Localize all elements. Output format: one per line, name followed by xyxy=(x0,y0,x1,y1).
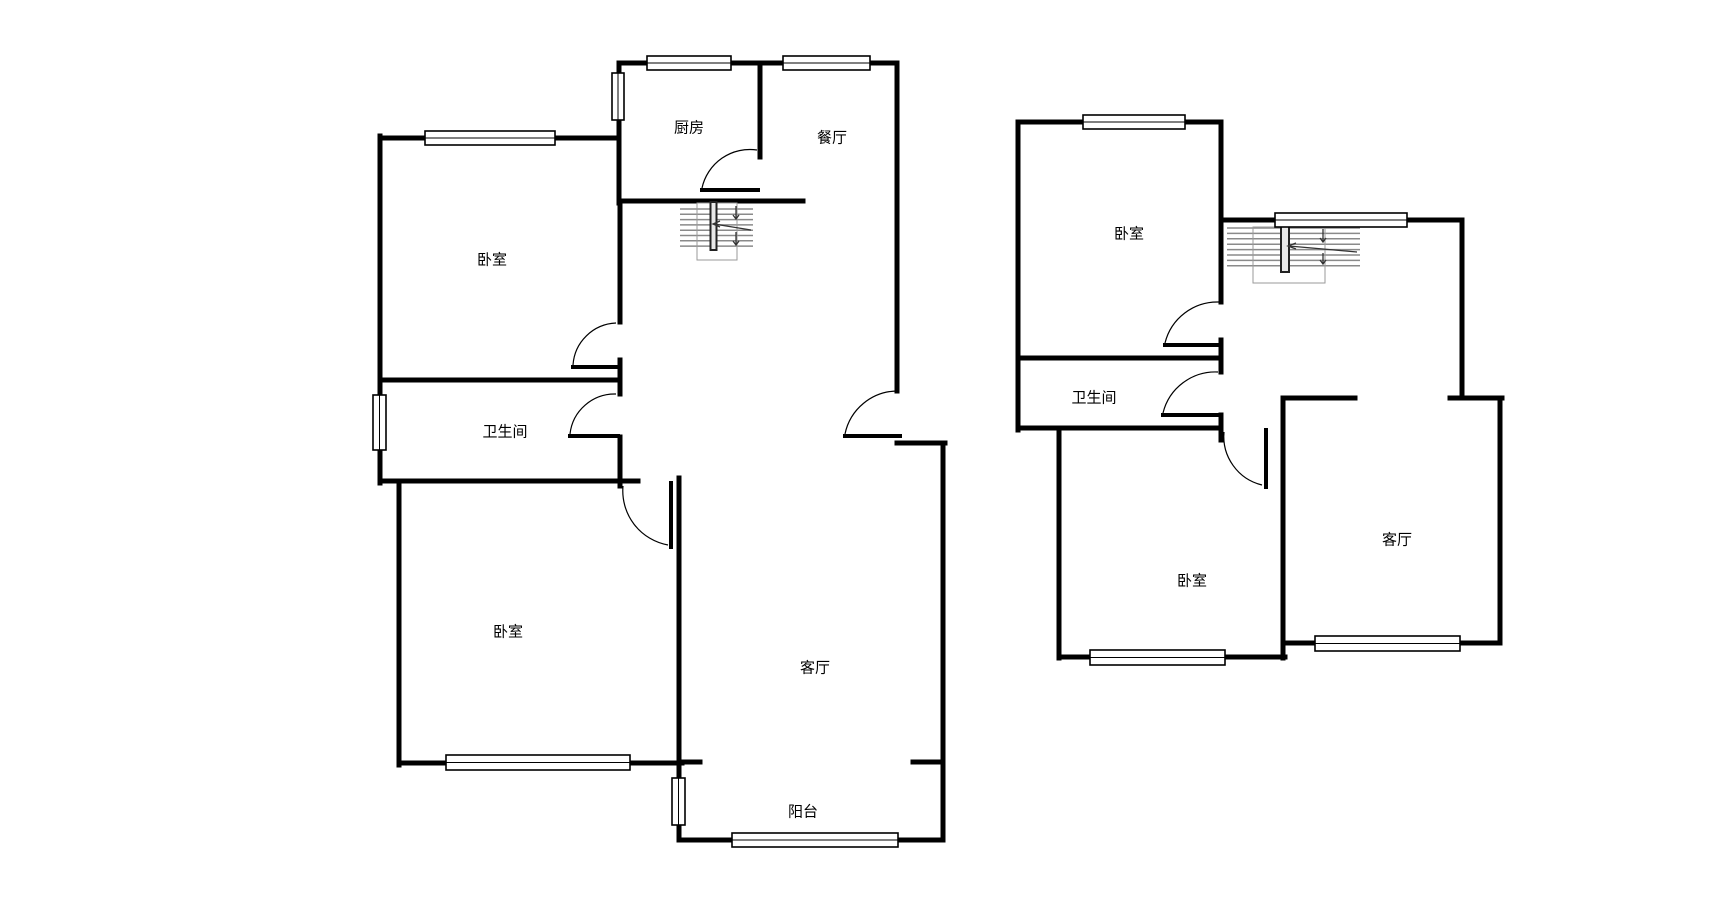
window xyxy=(425,131,555,145)
window xyxy=(1315,636,1460,651)
balcony-label: 阳台 xyxy=(788,803,818,821)
stair-rail xyxy=(1281,225,1289,272)
bedroom-1-door xyxy=(573,323,618,367)
bedroom-2-label: 卧室 xyxy=(1177,572,1207,590)
window xyxy=(732,833,898,847)
window xyxy=(783,56,870,70)
bedroom-2-door xyxy=(623,483,671,547)
stair-direction-arrow xyxy=(733,232,739,245)
staircase xyxy=(1227,225,1360,283)
door-swing-arc xyxy=(1224,432,1262,485)
door-swing-arc xyxy=(1163,372,1218,413)
dining-room-label: 餐厅 xyxy=(817,129,847,147)
floor-plan-canvas: 厨房餐厅卧室卫生间卧室客厅阳台卧室卫生间卧室客厅 xyxy=(0,0,1731,917)
bathroom-door xyxy=(570,394,618,436)
second-floor-plan: 卧室卫生间卧室客厅 xyxy=(1018,115,1502,665)
door-swing-arc xyxy=(1165,302,1219,343)
window xyxy=(647,56,731,70)
living-room-label: 客厅 xyxy=(1382,531,1412,549)
window xyxy=(1090,650,1225,665)
door-swing-arc xyxy=(702,149,757,188)
window xyxy=(612,73,624,120)
door-swing-arc xyxy=(570,394,616,434)
staircase xyxy=(680,202,753,260)
bedroom-2-door xyxy=(1224,430,1266,487)
window xyxy=(1083,115,1185,129)
bedroom-1-door xyxy=(1165,302,1221,345)
first-floor-plan: 厨房餐厅卧室卫生间卧室客厅阳台 xyxy=(373,56,945,847)
stair-rail xyxy=(711,202,717,250)
door-swing-arc xyxy=(573,323,616,365)
bathroom-label: 卫生间 xyxy=(1071,389,1116,407)
window xyxy=(672,778,685,825)
bedroom-1-label: 卧室 xyxy=(1114,225,1144,243)
bedroom-2-label: 卧室 xyxy=(493,623,523,641)
kitchen-label: 厨房 xyxy=(674,119,704,137)
kitchen-door xyxy=(702,149,758,190)
window xyxy=(446,755,630,770)
window xyxy=(373,395,386,450)
stair-direction-arrow xyxy=(733,206,739,219)
bedroom-1-label: 卧室 xyxy=(477,251,507,269)
entry-door xyxy=(845,391,900,436)
living-room-label: 客厅 xyxy=(800,659,830,677)
bathroom-door xyxy=(1163,372,1218,415)
floor-plan-page: 厨房餐厅卧室卫生间卧室客厅阳台卧室卫生间卧室客厅 xyxy=(0,0,1731,917)
door-swing-arc xyxy=(845,391,897,434)
window xyxy=(1275,213,1407,227)
door-swing-arc xyxy=(623,486,668,545)
bathroom-label: 卫生间 xyxy=(482,423,527,441)
